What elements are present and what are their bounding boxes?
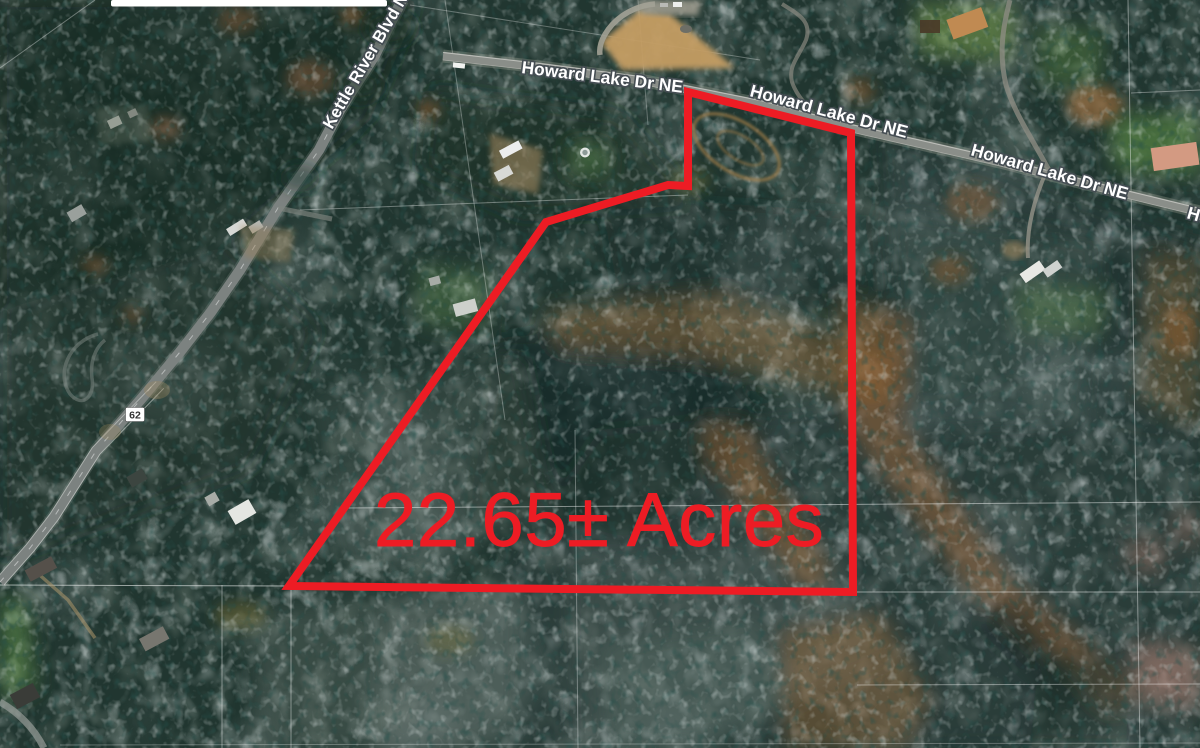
svg-text:22.65± Acres: 22.65± Acres bbox=[374, 478, 824, 563]
svg-text:62: 62 bbox=[129, 410, 141, 422]
